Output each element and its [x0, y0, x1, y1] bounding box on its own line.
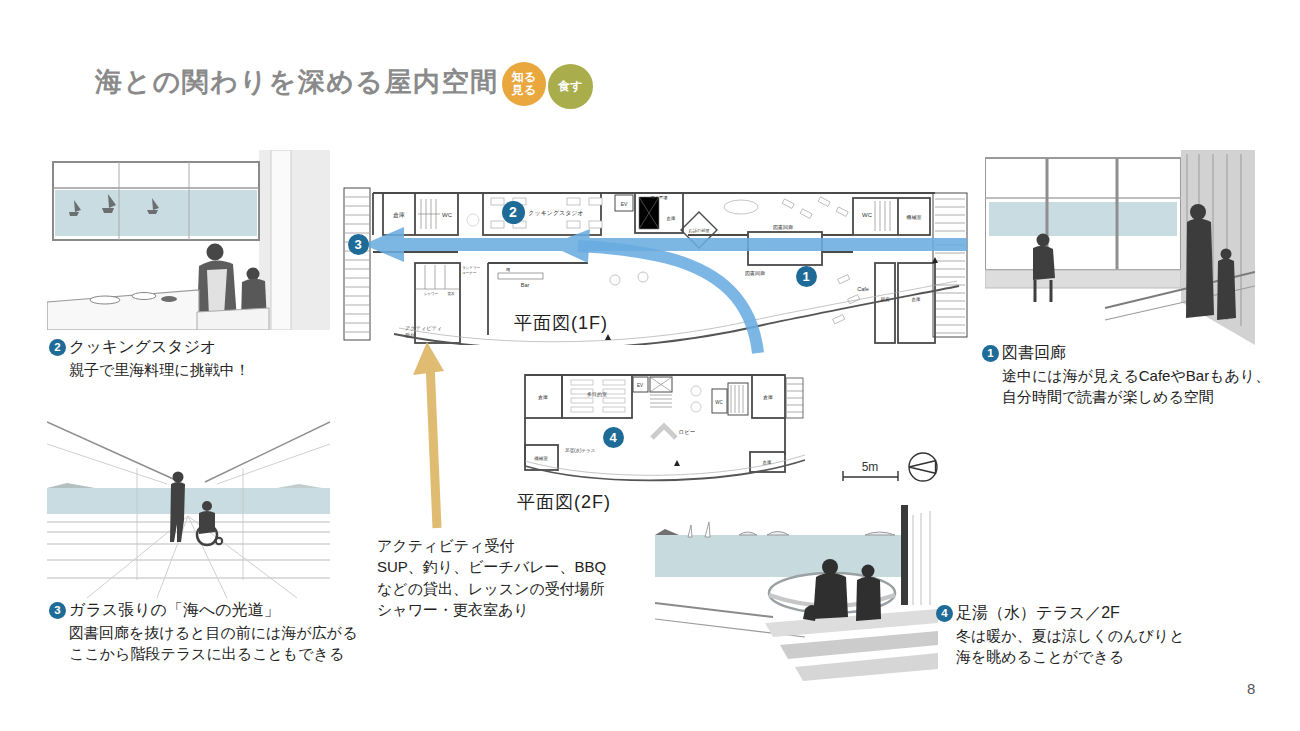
- note-title-text: クッキングスタジオ: [69, 336, 216, 359]
- numchip-4: 4: [936, 605, 953, 622]
- activity-desk-label: 受付: [405, 332, 415, 339]
- numchip-2: 2: [49, 339, 66, 356]
- note-line: シャワー・更衣室あり: [377, 599, 606, 620]
- room-label: Bar: [521, 282, 530, 288]
- room-label: 厨房: [881, 297, 891, 302]
- room-label: 倉庫: [667, 216, 677, 221]
- numchip-3: 3: [49, 602, 66, 619]
- badge-shiru-miru: 知る 見る: [502, 62, 546, 106]
- note-cooking-studio: 2 クッキングスタジオ 親子で里海料理に挑戦中！: [49, 336, 250, 380]
- numchip-1: 1: [982, 345, 999, 362]
- note-title-text: ガラス張りの「海への光道」: [69, 599, 280, 622]
- room-label: シャワー: [424, 292, 439, 296]
- cooking-studio-sketch: [47, 150, 330, 330]
- marker-3: 3: [348, 234, 369, 255]
- post: [901, 505, 908, 605]
- note-title-text: 足湯（水）テラス／2F: [956, 602, 1120, 625]
- room-label: 機械室: [534, 456, 548, 461]
- room-label: クッキングスタジオ: [528, 210, 583, 217]
- lobby-chevron: [652, 426, 676, 438]
- scale-and-compass: 5m: [838, 445, 943, 490]
- note-line: 海を眺めることができる: [956, 646, 1185, 667]
- badge-line: 見る: [512, 84, 536, 97]
- note-title: 2 クッキングスタジオ: [49, 336, 250, 359]
- activity-reception-note: アクティビティ受付 SUP、釣り、ビーチバレー、BBQ などの貸出、レッスンの受…: [377, 535, 606, 620]
- plan-2f-caption: 平面図(2F): [517, 490, 611, 514]
- page-title: 海との関わりを深める屋内空間: [95, 64, 498, 100]
- room-label: WC: [442, 212, 453, 218]
- light-corridor-sketch: [47, 420, 330, 598]
- badge-line: 食す: [558, 80, 582, 93]
- room-label: ランドリー: [462, 265, 481, 270]
- note-line: 冬は暖か、夏は涼しくのんびりと: [956, 625, 1185, 646]
- north-compass-icon: [909, 453, 937, 481]
- room-label: 更衣: [447, 291, 455, 296]
- note-line: ここから階段テラスに出ることもできる: [69, 643, 358, 664]
- floor-plan-2f: 倉庫 多目的室 EV WC 倉庫 ロビー 機械室 倉庫 足湯(水)テラス: [515, 360, 815, 485]
- room-label: WC: [862, 212, 873, 218]
- room-label: 棚: [506, 267, 510, 272]
- window-sea-view: [53, 162, 259, 240]
- page-number: 8: [1247, 680, 1255, 697]
- activity-title: アクティビティ受付: [377, 535, 606, 556]
- room-label: 機械室: [906, 214, 922, 220]
- note-light-corridor: 3 ガラス張りの「海への光道」 図書回廊を抜けると目の前には海が広がる ここから…: [49, 599, 358, 664]
- room-label: WC: [715, 400, 723, 405]
- note-library-corridor: 1 図書回廊 途中には海が見えるCafeやBarもあり、 自分時間で読書が楽しめ…: [982, 342, 1270, 407]
- ashiyu-terrace-label: 足湯(水)テラス: [565, 447, 595, 454]
- footbath-terrace-sketch: [655, 505, 938, 693]
- room-label: 多目的室: [587, 391, 607, 398]
- room-label: EV: [637, 383, 643, 388]
- room-label: EV: [621, 201, 628, 207]
- wall-shading: [259, 150, 330, 330]
- note-title-text: 図書回廊: [1002, 342, 1066, 365]
- plan-1f-caption: 平面図(1F): [514, 311, 608, 335]
- room-label: Cafe: [857, 286, 869, 292]
- marker-4: 4: [603, 427, 624, 448]
- note-title: 3 ガラス張りの「海への光道」: [49, 599, 358, 622]
- room-label: 図書回廊: [773, 224, 793, 231]
- note-footbath-terrace: 4 足湯（水）テラス／2F 冬は暖か、夏は涼しくのんびりと 海を眺めることができ…: [936, 602, 1185, 667]
- room-label: 倉庫: [912, 297, 922, 302]
- marker-2: 2: [502, 201, 525, 224]
- sea-band: [47, 488, 330, 514]
- marker-1: 1: [796, 266, 817, 287]
- library-corridor-sketch: [985, 150, 1255, 345]
- slide: 海との関わりを深める屋内空間 知る 見る 食す: [0, 0, 1300, 731]
- activity-pointer-arrow: [413, 342, 444, 528]
- note-line: 親子で里海料理に挑戦中！: [69, 359, 250, 380]
- room-label: ロビー: [679, 429, 696, 435]
- room-label: 倉庫: [763, 394, 773, 400]
- room-label: 倉庫: [538, 394, 548, 400]
- room-label: 倉庫: [393, 211, 405, 218]
- window-wall: [985, 158, 1181, 288]
- room-label: 倉庫: [763, 460, 773, 465]
- scale-label: 5m: [862, 460, 879, 474]
- note-line: などの貸出、レッスンの受付場所: [377, 578, 606, 599]
- note-title: 1 図書回廊: [982, 342, 1270, 365]
- room-label: コーナー: [462, 271, 477, 275]
- room-label: お話の部屋: [688, 228, 709, 233]
- floor-plan-1f: 倉庫 WC クッキングスタジオ EV ゴミ置場 倉庫 お話の部屋 図書回廊 図書…: [343, 185, 973, 345]
- note-line: SUP、釣り、ビーチバレー、BBQ: [377, 556, 606, 577]
- note-line: 図書回廊を抜けると目の前には海が広がる: [69, 622, 358, 643]
- note-line: 自分時間で読書が楽しめる空間: [1002, 386, 1270, 407]
- badge-kuu: 食す: [546, 62, 595, 111]
- activity-desk-label: アクティビティ: [405, 325, 442, 331]
- room-label: 図書回廊: [745, 270, 765, 277]
- note-title: 4 足湯（水）テラス／2F: [936, 602, 1185, 625]
- note-line: 途中には海が見えるCafeやBarもあり、: [1002, 365, 1270, 386]
